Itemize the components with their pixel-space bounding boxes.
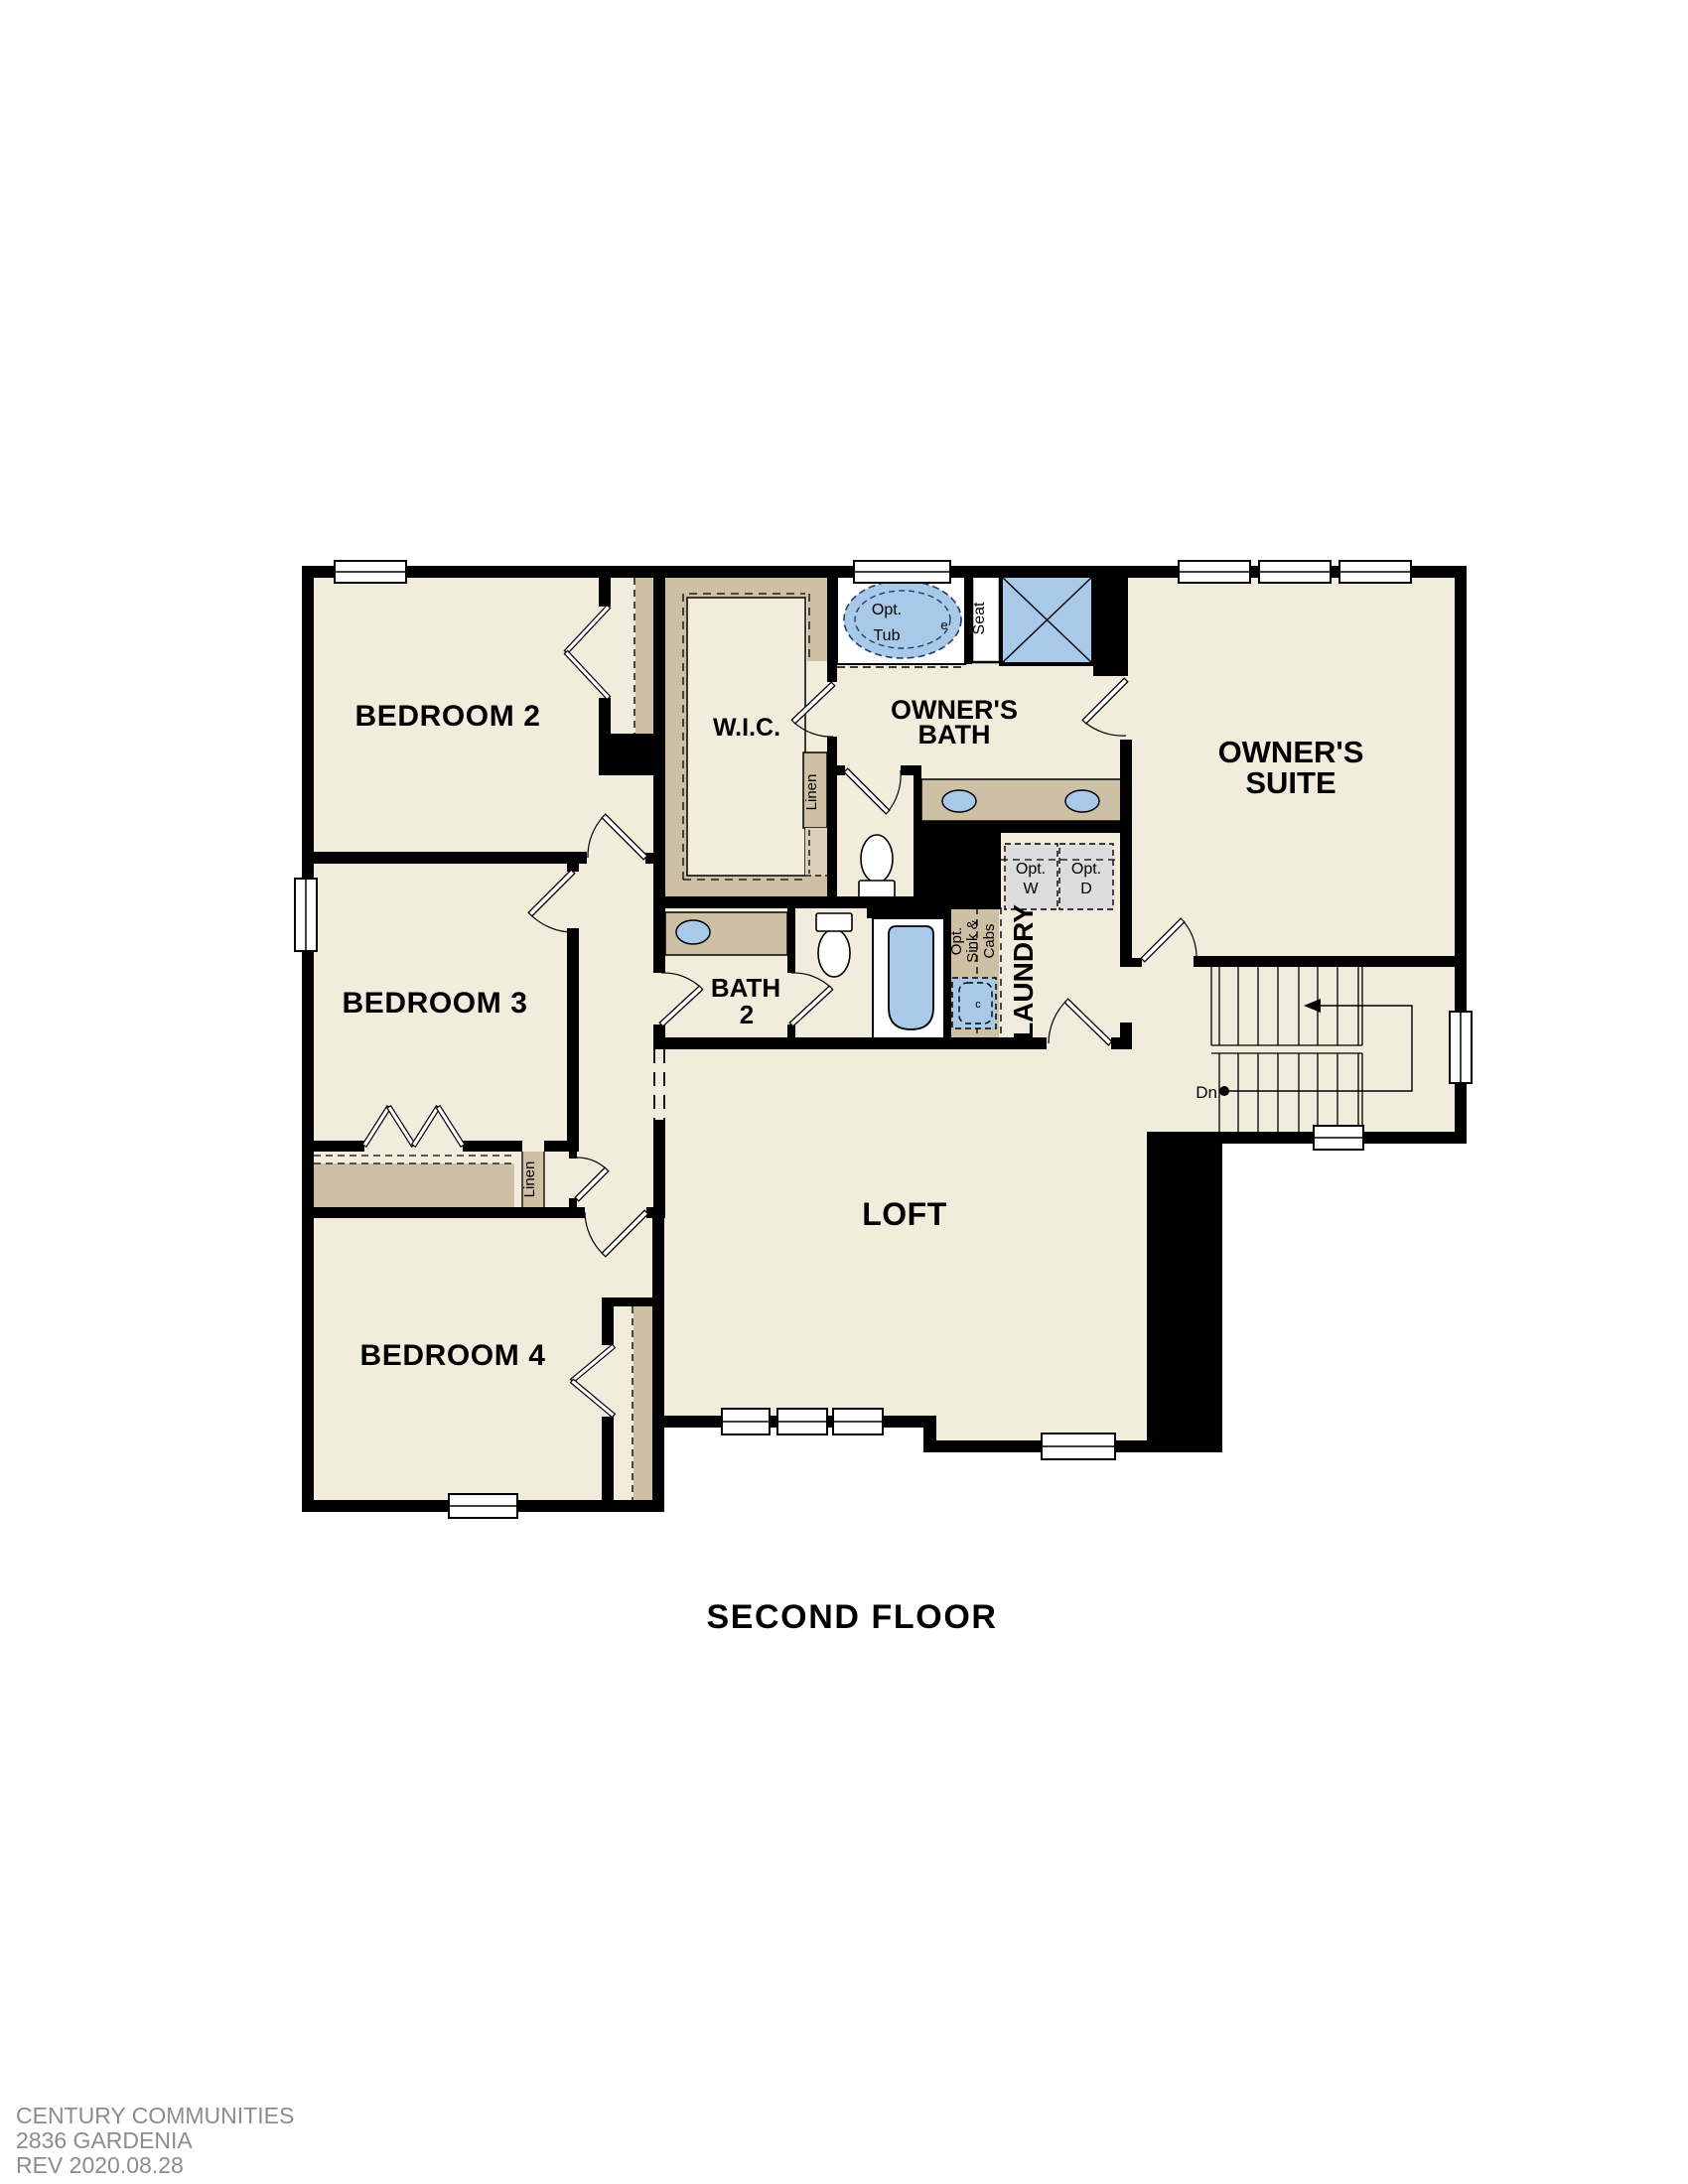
- svg-text:Cabs: Cabs: [981, 923, 998, 958]
- svg-text:Tub: Tub: [874, 627, 901, 644]
- svg-text:c: c: [975, 999, 981, 1011]
- svg-text:CENTURY COMMUNITIES: CENTURY COMMUNITIES: [16, 2103, 294, 2128]
- svg-text:Linen: Linen: [521, 1161, 538, 1198]
- svg-text:LAUNDRY: LAUNDRY: [1008, 904, 1039, 1039]
- svg-text:Linen: Linen: [803, 774, 820, 811]
- svg-text:W.I.C.: W.I.C.: [713, 714, 780, 742]
- svg-text:e: e: [940, 617, 947, 632]
- svg-text:BEDROOM 3: BEDROOM 3: [342, 987, 527, 1020]
- svg-text:BEDROOM 2: BEDROOM 2: [354, 700, 540, 733]
- svg-text:OWNER'S: OWNER'S: [1218, 735, 1364, 769]
- svg-text:REV 2020.08.28: REV 2020.08.28: [16, 2152, 184, 2178]
- svg-text:Seat: Seat: [971, 602, 988, 634]
- svg-text:Opt.: Opt.: [1016, 861, 1046, 878]
- svg-text:D: D: [1080, 881, 1092, 897]
- svg-text:BEDROOM 4: BEDROOM 4: [359, 1339, 545, 1372]
- svg-text:Opt.: Opt.: [1071, 861, 1101, 878]
- svg-text:SUITE: SUITE: [1245, 765, 1336, 800]
- svg-text:BATH: BATH: [711, 973, 780, 1003]
- svg-text:2: 2: [740, 1000, 754, 1029]
- svg-text:Dn: Dn: [1196, 1083, 1217, 1102]
- svg-text:W: W: [1023, 881, 1039, 897]
- svg-text:LOFT: LOFT: [862, 1196, 947, 1232]
- svg-text:2836 GARDENIA: 2836 GARDENIA: [16, 2127, 193, 2153]
- svg-text:SECOND FLOOR: SECOND FLOOR: [706, 1598, 997, 1636]
- svg-text:BATH: BATH: [918, 720, 991, 750]
- svg-text:Sink &: Sink &: [964, 919, 981, 962]
- svg-text:Opt.: Opt.: [872, 602, 902, 618]
